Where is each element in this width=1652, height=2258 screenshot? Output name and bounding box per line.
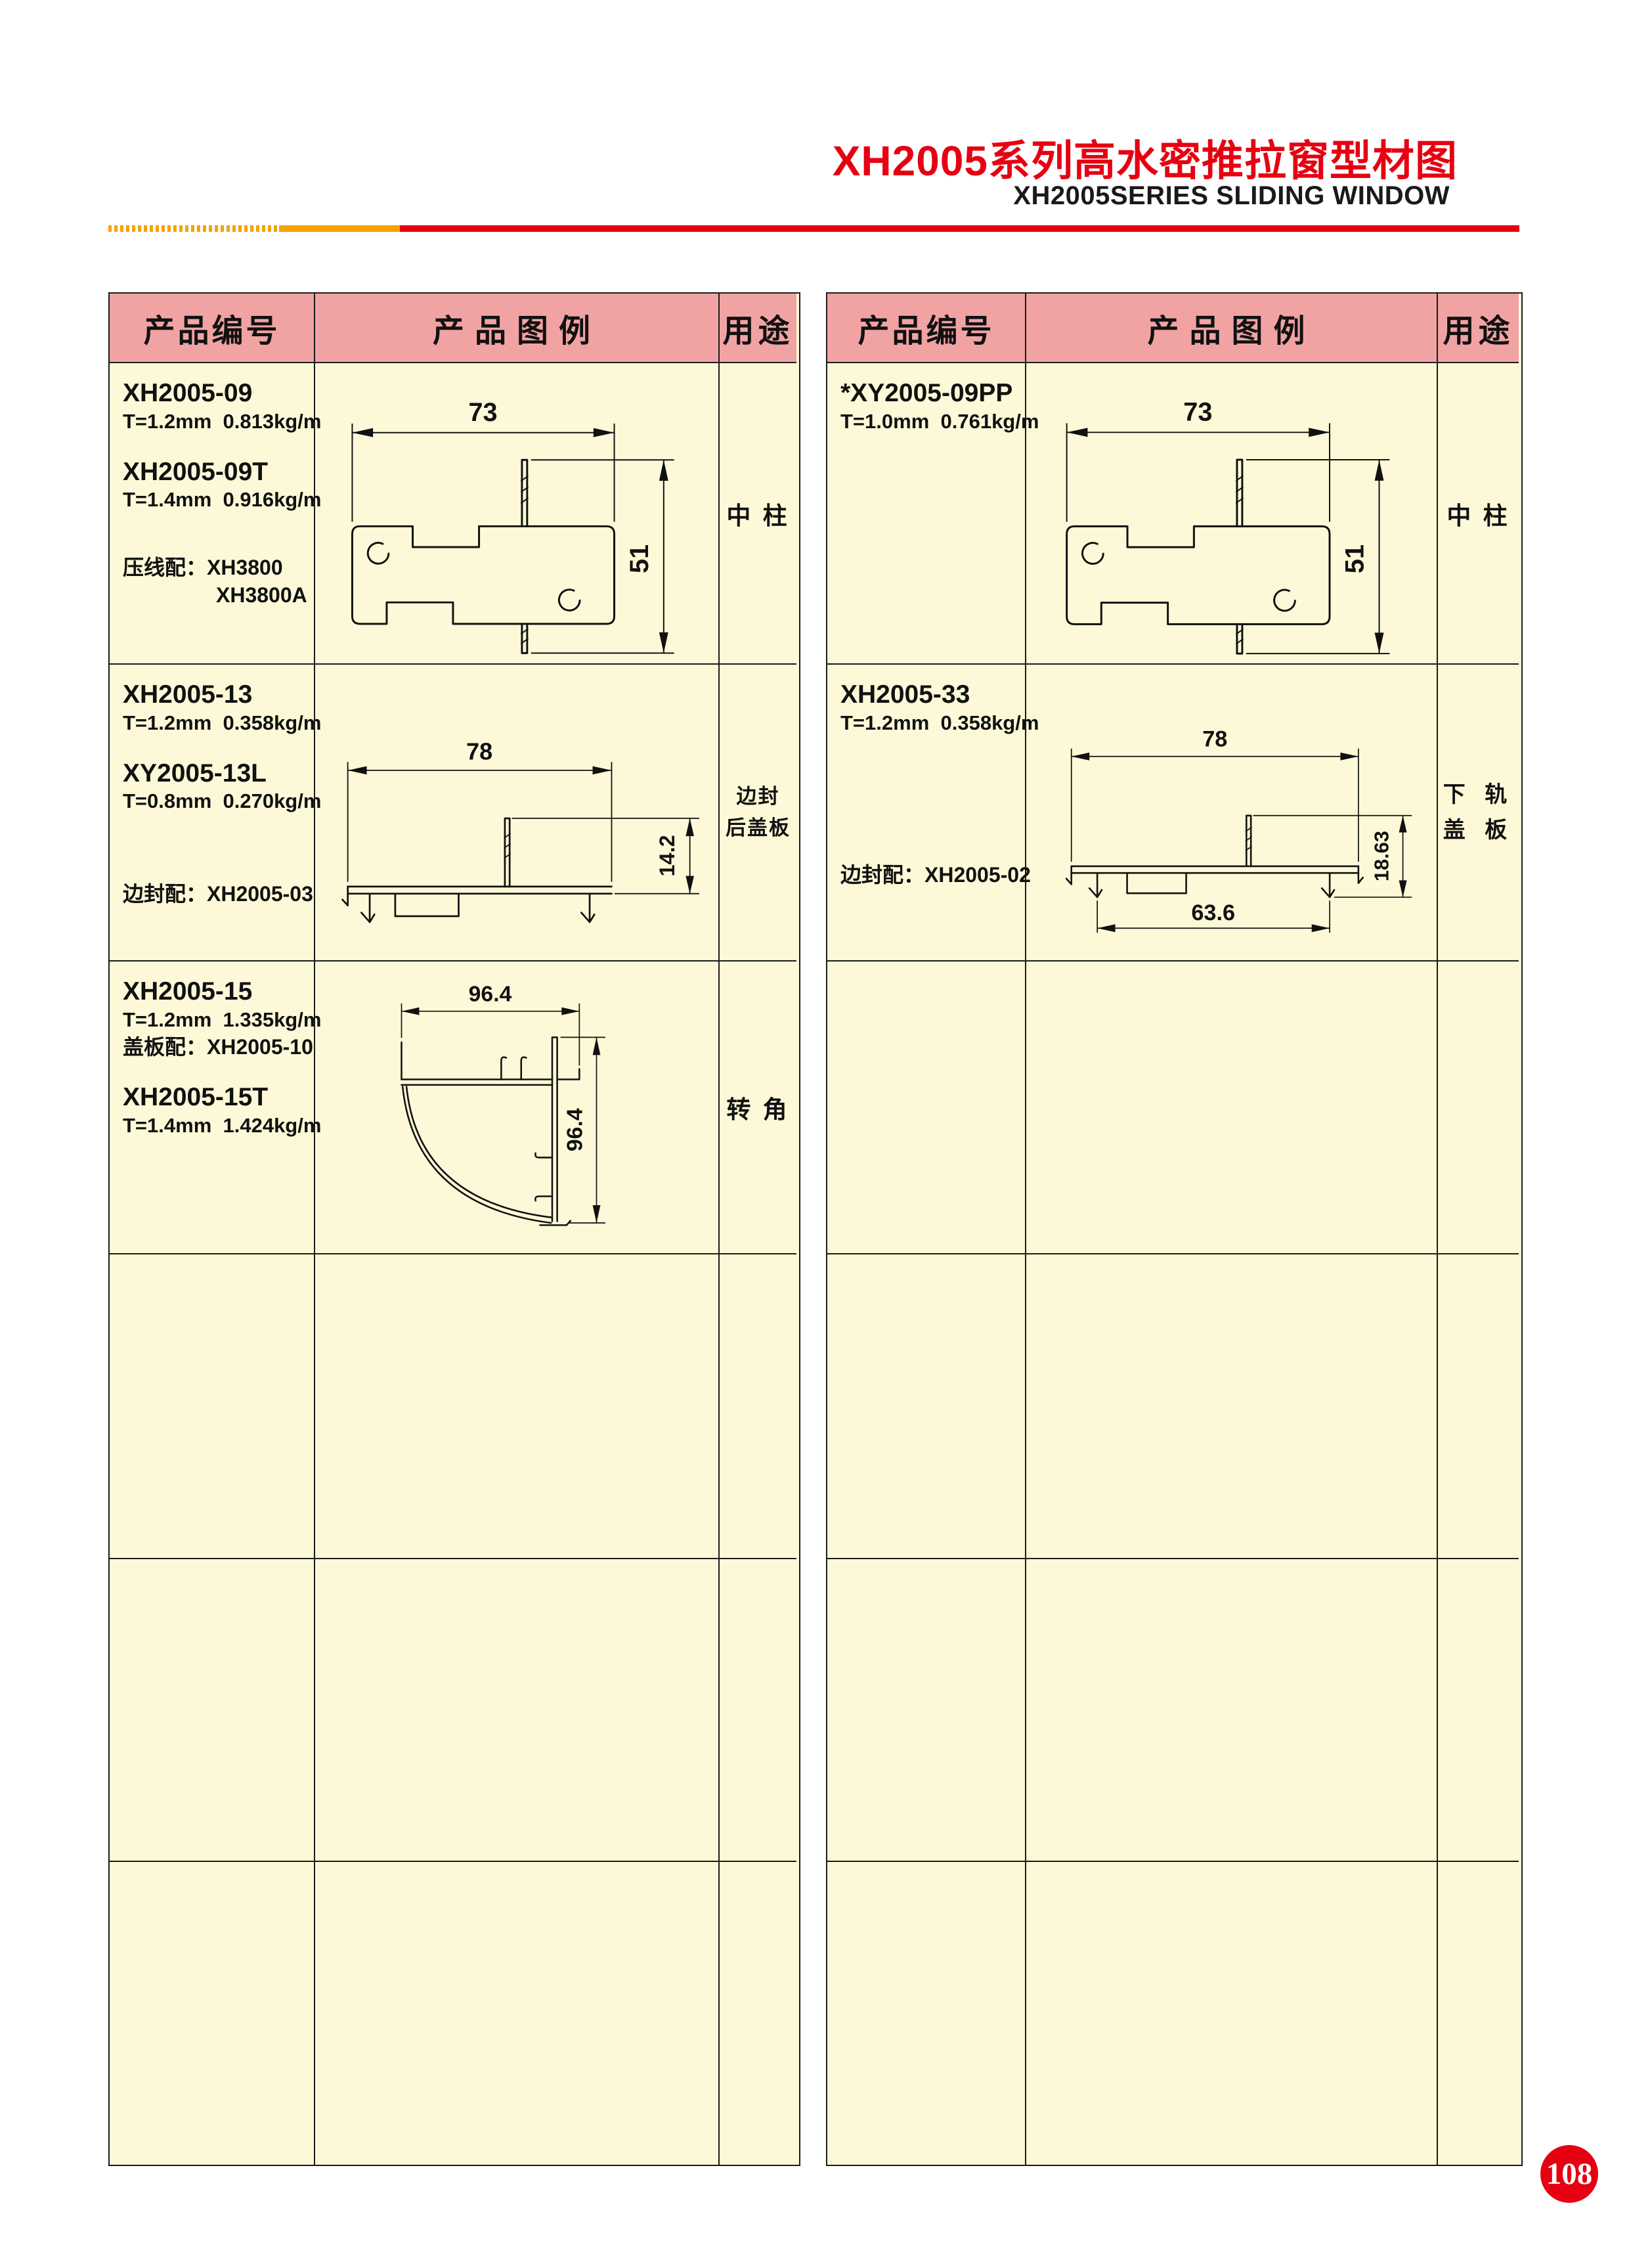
empty-cell (827, 1559, 1026, 1862)
dim-width-label: 73 (1183, 397, 1212, 426)
product-code: XH2005-15T (123, 1083, 307, 1112)
empty-cell (1026, 962, 1438, 1254)
empty-cell (110, 1254, 315, 1559)
product-code: XY2005-13L (123, 759, 307, 788)
product-diagram-cell: 73 51 (1026, 363, 1438, 665)
dim-width-label: 96.4 (469, 981, 512, 1006)
product-note: 边封配：XH2005-03 (123, 881, 307, 908)
use-label: 转 角 (726, 1090, 789, 1125)
profile-diagram-xh2005-15: 96.4 96.4 (339, 963, 694, 1252)
product-spec: T=1.2mm 0.813kg/m (123, 408, 307, 435)
product-diagram-cell: 73 51 (315, 363, 720, 665)
product-diagram-cell: 78 18.63 63.6 (1026, 665, 1438, 962)
product-code: XH2005-09T (123, 458, 307, 487)
use-label: 下 轨 (1443, 777, 1513, 812)
dim-height-label: 18.63 (1370, 830, 1393, 881)
right-col-header-product-diagram: 产品图例 (1026, 294, 1438, 363)
product-diagram-cell: 96.4 96.4 (315, 962, 720, 1254)
product-note: 盖板配：XH2005-10 (123, 1034, 307, 1061)
product-note-continued: XH3800A (216, 582, 307, 609)
empty-cell (315, 1254, 720, 1559)
dim-width-label: 78 (466, 738, 492, 765)
dim-width-label: 73 (468, 398, 497, 427)
product-code-cell: XH2005-13 T=1.2mm 0.358kg/m XY2005-13L T… (110, 665, 315, 962)
profile-diagram-xh2005-33: 78 18.63 63.6 (1035, 680, 1429, 945)
profile-diagram-xh2005-09: 73 51 (315, 363, 718, 663)
empty-cell (720, 1559, 796, 1862)
page-subtitle: XH2005SERIES SLIDING WINDOW (1013, 181, 1450, 211)
right-product-table: 产品编号 产品图例 用途 *XY2005-09PP T=1.0mm 0.761k… (826, 292, 1523, 2166)
use-label: 后盖板 (726, 812, 791, 844)
page-number-badge: 108 (1540, 2145, 1598, 2203)
product-use-cell: 中 柱 (720, 363, 796, 665)
empty-cell (110, 1559, 315, 1862)
dim-height-label: 14.2 (655, 835, 679, 876)
product-code-cell: *XY2005-09PP T=1.0mm 0.761kg/m (827, 363, 1026, 665)
left-col-header-product-diagram: 产品图例 (315, 294, 720, 363)
product-note: 边封配：XH2005-02 (840, 862, 1018, 889)
empty-cell (827, 962, 1026, 1254)
product-code: XH2005-15 (123, 977, 307, 1006)
product-use-cell: 中 柱 (1438, 363, 1519, 665)
product-code: XH2005-09 (123, 379, 307, 408)
use-label: 中 柱 (726, 496, 789, 531)
left-product-table: 产品编号 产品图例 用途 XH2005-09 T=1.2mm 0.813kg/m… (108, 292, 800, 2166)
product-code: *XY2005-09PP (840, 379, 1018, 408)
product-diagram-cell: 78 14.2 (315, 665, 720, 962)
empty-cell (1438, 1862, 1519, 2165)
product-code-cell: XH2005-33 T=1.2mm 0.358kg/m 边封配：XH2005-0… (827, 665, 1026, 962)
empty-cell (1026, 1254, 1438, 1559)
product-code: XH2005-13 (123, 680, 307, 709)
decor-barcode-stripes (108, 225, 279, 232)
page-number: 108 (1546, 2156, 1593, 2192)
empty-cell (827, 1862, 1026, 2165)
product-code: XH2005-33 (840, 680, 1018, 709)
right-col-header-product-code: 产品编号 (827, 294, 1026, 363)
product-note: 压线配：XH3800 (123, 554, 307, 582)
product-code-cell: XH2005-09 T=1.2mm 0.813kg/m XH2005-09T T… (110, 363, 315, 665)
empty-cell (1438, 962, 1519, 1254)
page-title: XH2005系列高水密推拉窗型材图 (833, 127, 1458, 188)
dim-height-label: 51 (1340, 544, 1369, 573)
empty-cell (1438, 1254, 1519, 1559)
empty-cell (110, 1862, 315, 2165)
empty-cell (315, 1559, 720, 1862)
empty-cell (720, 1862, 796, 2165)
left-col-header-use: 用途 (720, 294, 796, 363)
use-label: 盖 板 (1443, 812, 1513, 848)
product-use-cell: 下 轨 盖 板 (1438, 665, 1519, 962)
product-use-cell: 转 角 (720, 962, 796, 1254)
product-spec: T=1.4mm 1.424kg/m (123, 1112, 307, 1140)
dim-height-label: 51 (625, 544, 654, 573)
dim-width-label: 78 (1202, 726, 1227, 751)
profile-diagram-xy2005-09pp: 73 51 (1030, 363, 1434, 663)
product-spec: T=1.4mm 0.916kg/m (123, 486, 307, 514)
empty-cell (1026, 1559, 1438, 1862)
empty-cell (720, 1254, 796, 1559)
product-use-cell: 边封 后盖板 (720, 665, 796, 962)
right-col-header-use: 用途 (1438, 294, 1519, 363)
empty-cell (827, 1254, 1026, 1559)
use-label: 边封 (737, 781, 780, 812)
empty-cell (1438, 1559, 1519, 1862)
product-spec: T=1.0mm 0.761kg/m (840, 408, 1018, 435)
dim-bottom-label: 63.6 (1191, 900, 1235, 925)
empty-cell (315, 1862, 720, 2165)
product-spec: T=1.2mm 0.358kg/m (840, 709, 1018, 737)
use-label: 中 柱 (1446, 496, 1510, 531)
product-spec: T=1.2mm 1.335kg/m (123, 1006, 307, 1034)
product-code-cell: XH2005-15 T=1.2mm 1.335kg/m 盖板配：XH2005-1… (110, 962, 315, 1254)
empty-cell (1026, 1862, 1438, 2165)
decor-red-bar (400, 225, 1519, 232)
product-spec: T=0.8mm 0.270kg/m (123, 787, 307, 815)
decor-orange-bar (279, 225, 400, 232)
left-col-header-product-code: 产品编号 (110, 294, 315, 363)
product-spec: T=1.2mm 0.358kg/m (123, 709, 307, 737)
catalog-page: XH2005系列高水密推拉窗型材图 XH2005SERIES SLIDING W… (0, 0, 1652, 2258)
dim-height-label: 96.4 (563, 1108, 588, 1151)
profile-diagram-xh2005-13: 78 14.2 (315, 684, 718, 941)
